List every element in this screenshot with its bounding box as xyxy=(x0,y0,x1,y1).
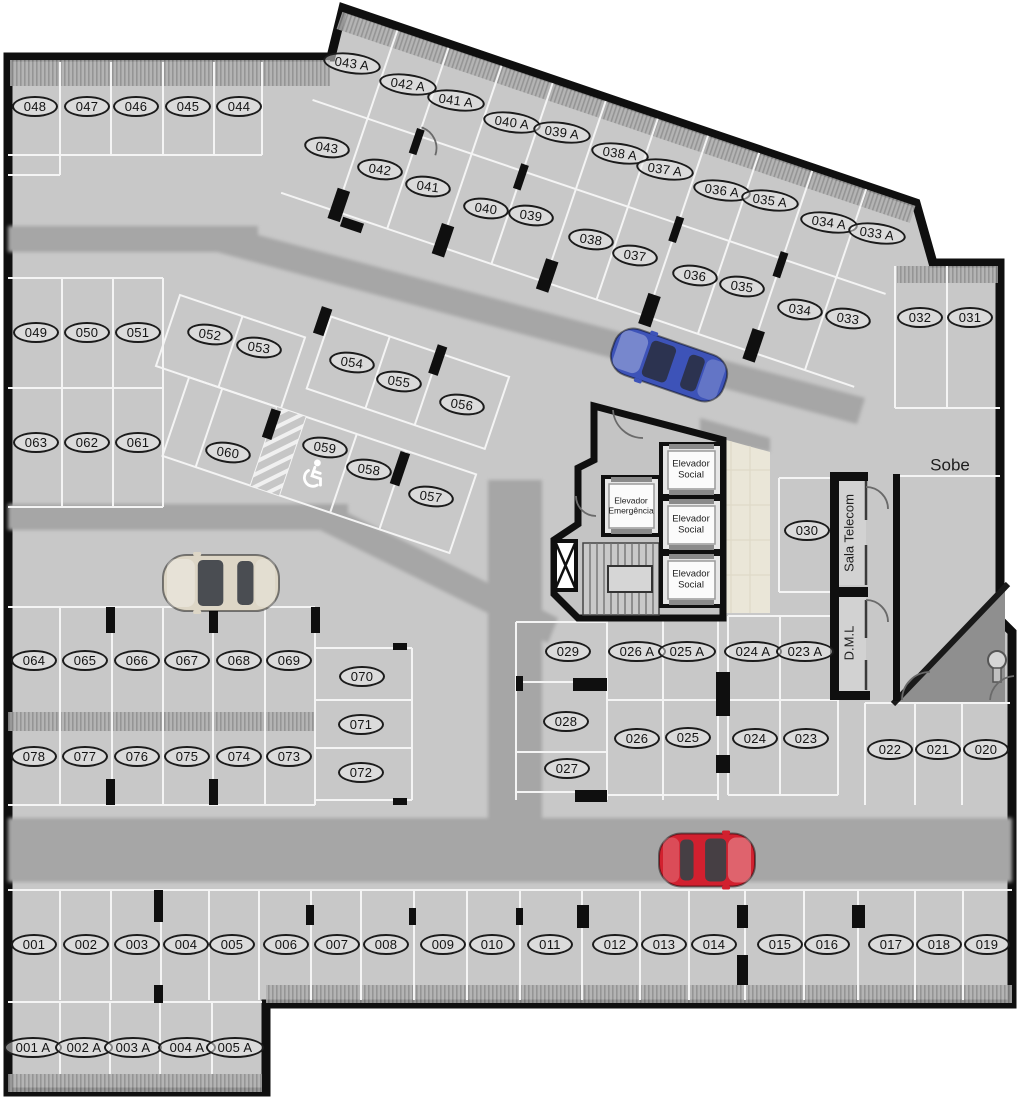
car-red xyxy=(659,831,755,890)
stairwell xyxy=(583,543,659,615)
parking-floorplan: 048047046045044043 A042 A041 A040 A039 A… xyxy=(0,0,1024,1099)
car-silver xyxy=(163,552,279,614)
floorplan-canvas xyxy=(0,0,1024,1099)
bollard-symbol xyxy=(988,651,1006,669)
shaft-x-box xyxy=(555,541,576,590)
